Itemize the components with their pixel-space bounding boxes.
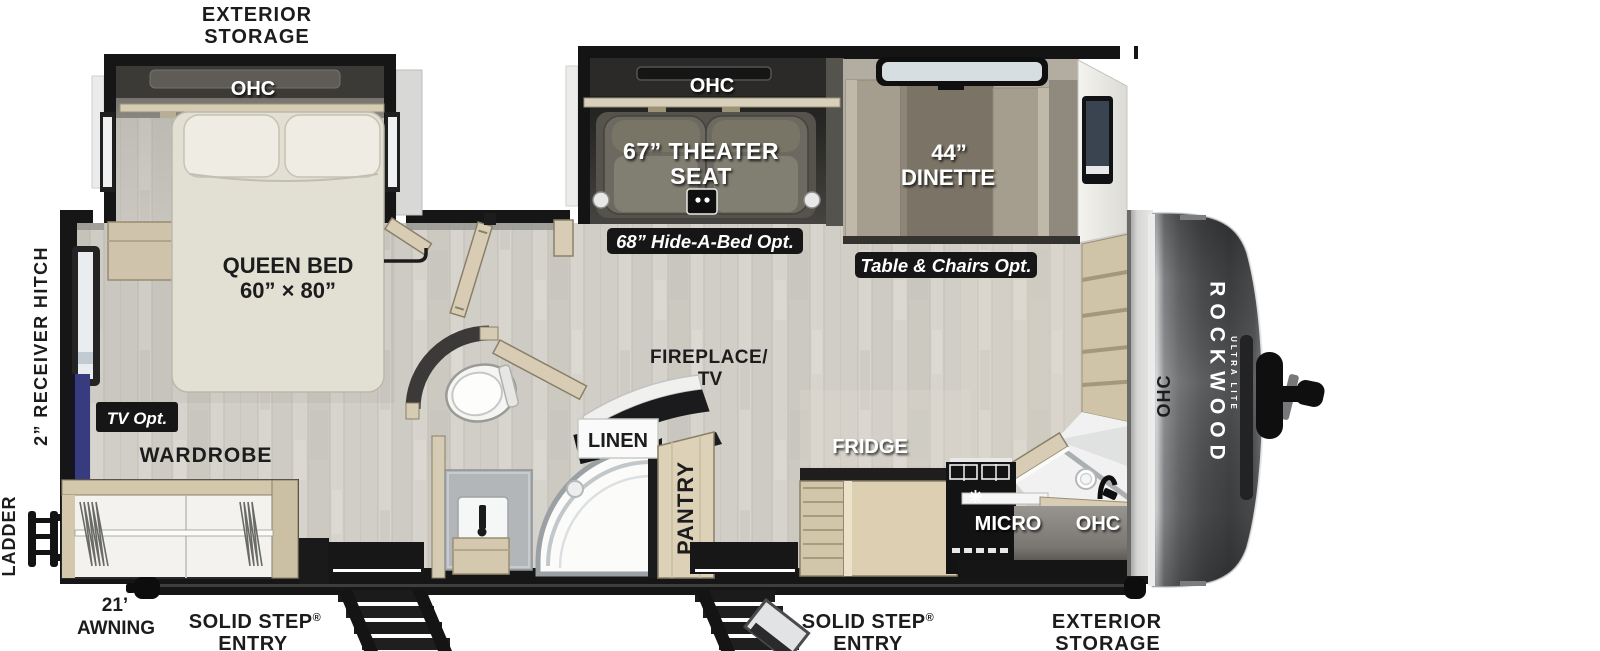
svg-text:21’: 21’ — [102, 595, 128, 616]
svg-text:SEAT: SEAT — [670, 163, 732, 189]
svg-text:EXTERIOR: EXTERIOR — [202, 4, 312, 26]
svg-text:STORAGE: STORAGE — [1055, 633, 1161, 651]
svg-text:OHC: OHC — [1154, 375, 1174, 418]
svg-text:ENTRY: ENTRY — [833, 633, 903, 651]
svg-text:PANTRY: PANTRY — [673, 461, 698, 555]
svg-text:ULTRA LITE: ULTRA LITE — [1229, 336, 1238, 412]
svg-text:MICRO: MICRO — [975, 513, 1042, 535]
svg-text:WARDROBE: WARDROBE — [140, 444, 273, 467]
svg-text:STORAGE: STORAGE — [204, 26, 310, 48]
svg-text:OHC: OHC — [690, 75, 734, 97]
svg-text:ROCKWOOD: ROCKWOOD — [1205, 281, 1228, 467]
svg-text:60” × 80”: 60” × 80” — [240, 278, 336, 303]
svg-text:OHC: OHC — [1076, 513, 1120, 535]
svg-text:Table & Chairs Opt.: Table & Chairs Opt. — [861, 255, 1032, 276]
svg-text:2” RECEIVER HITCH: 2” RECEIVER HITCH — [31, 246, 51, 446]
svg-text:ENTRY: ENTRY — [218, 633, 288, 651]
svg-text:FRIDGE: FRIDGE — [832, 436, 908, 458]
svg-text:LINEN: LINEN — [588, 430, 648, 452]
svg-text:DINETTE: DINETTE — [901, 165, 995, 190]
svg-text:FIREPLACE/: FIREPLACE/ — [650, 347, 768, 368]
svg-text:EXTERIOR: EXTERIOR — [1052, 611, 1162, 633]
svg-text:44”: 44” — [931, 140, 966, 165]
svg-text:OHC: OHC — [231, 78, 275, 100]
svg-text:TV Opt.: TV Opt. — [107, 409, 167, 428]
svg-text:68” Hide-A-Bed Opt.: 68” Hide-A-Bed Opt. — [616, 231, 794, 252]
svg-text:SOLID STEP®: SOLID STEP® — [189, 611, 322, 633]
svg-text:LADDER: LADDER — [0, 496, 19, 577]
svg-text:TV: TV — [698, 369, 723, 390]
svg-text:SOLID STEP®: SOLID STEP® — [802, 611, 935, 633]
svg-text:67” THEATER: 67” THEATER — [623, 138, 779, 164]
svg-text:QUEEN BED: QUEEN BED — [223, 253, 354, 278]
svg-text:AWNING: AWNING — [77, 618, 155, 639]
